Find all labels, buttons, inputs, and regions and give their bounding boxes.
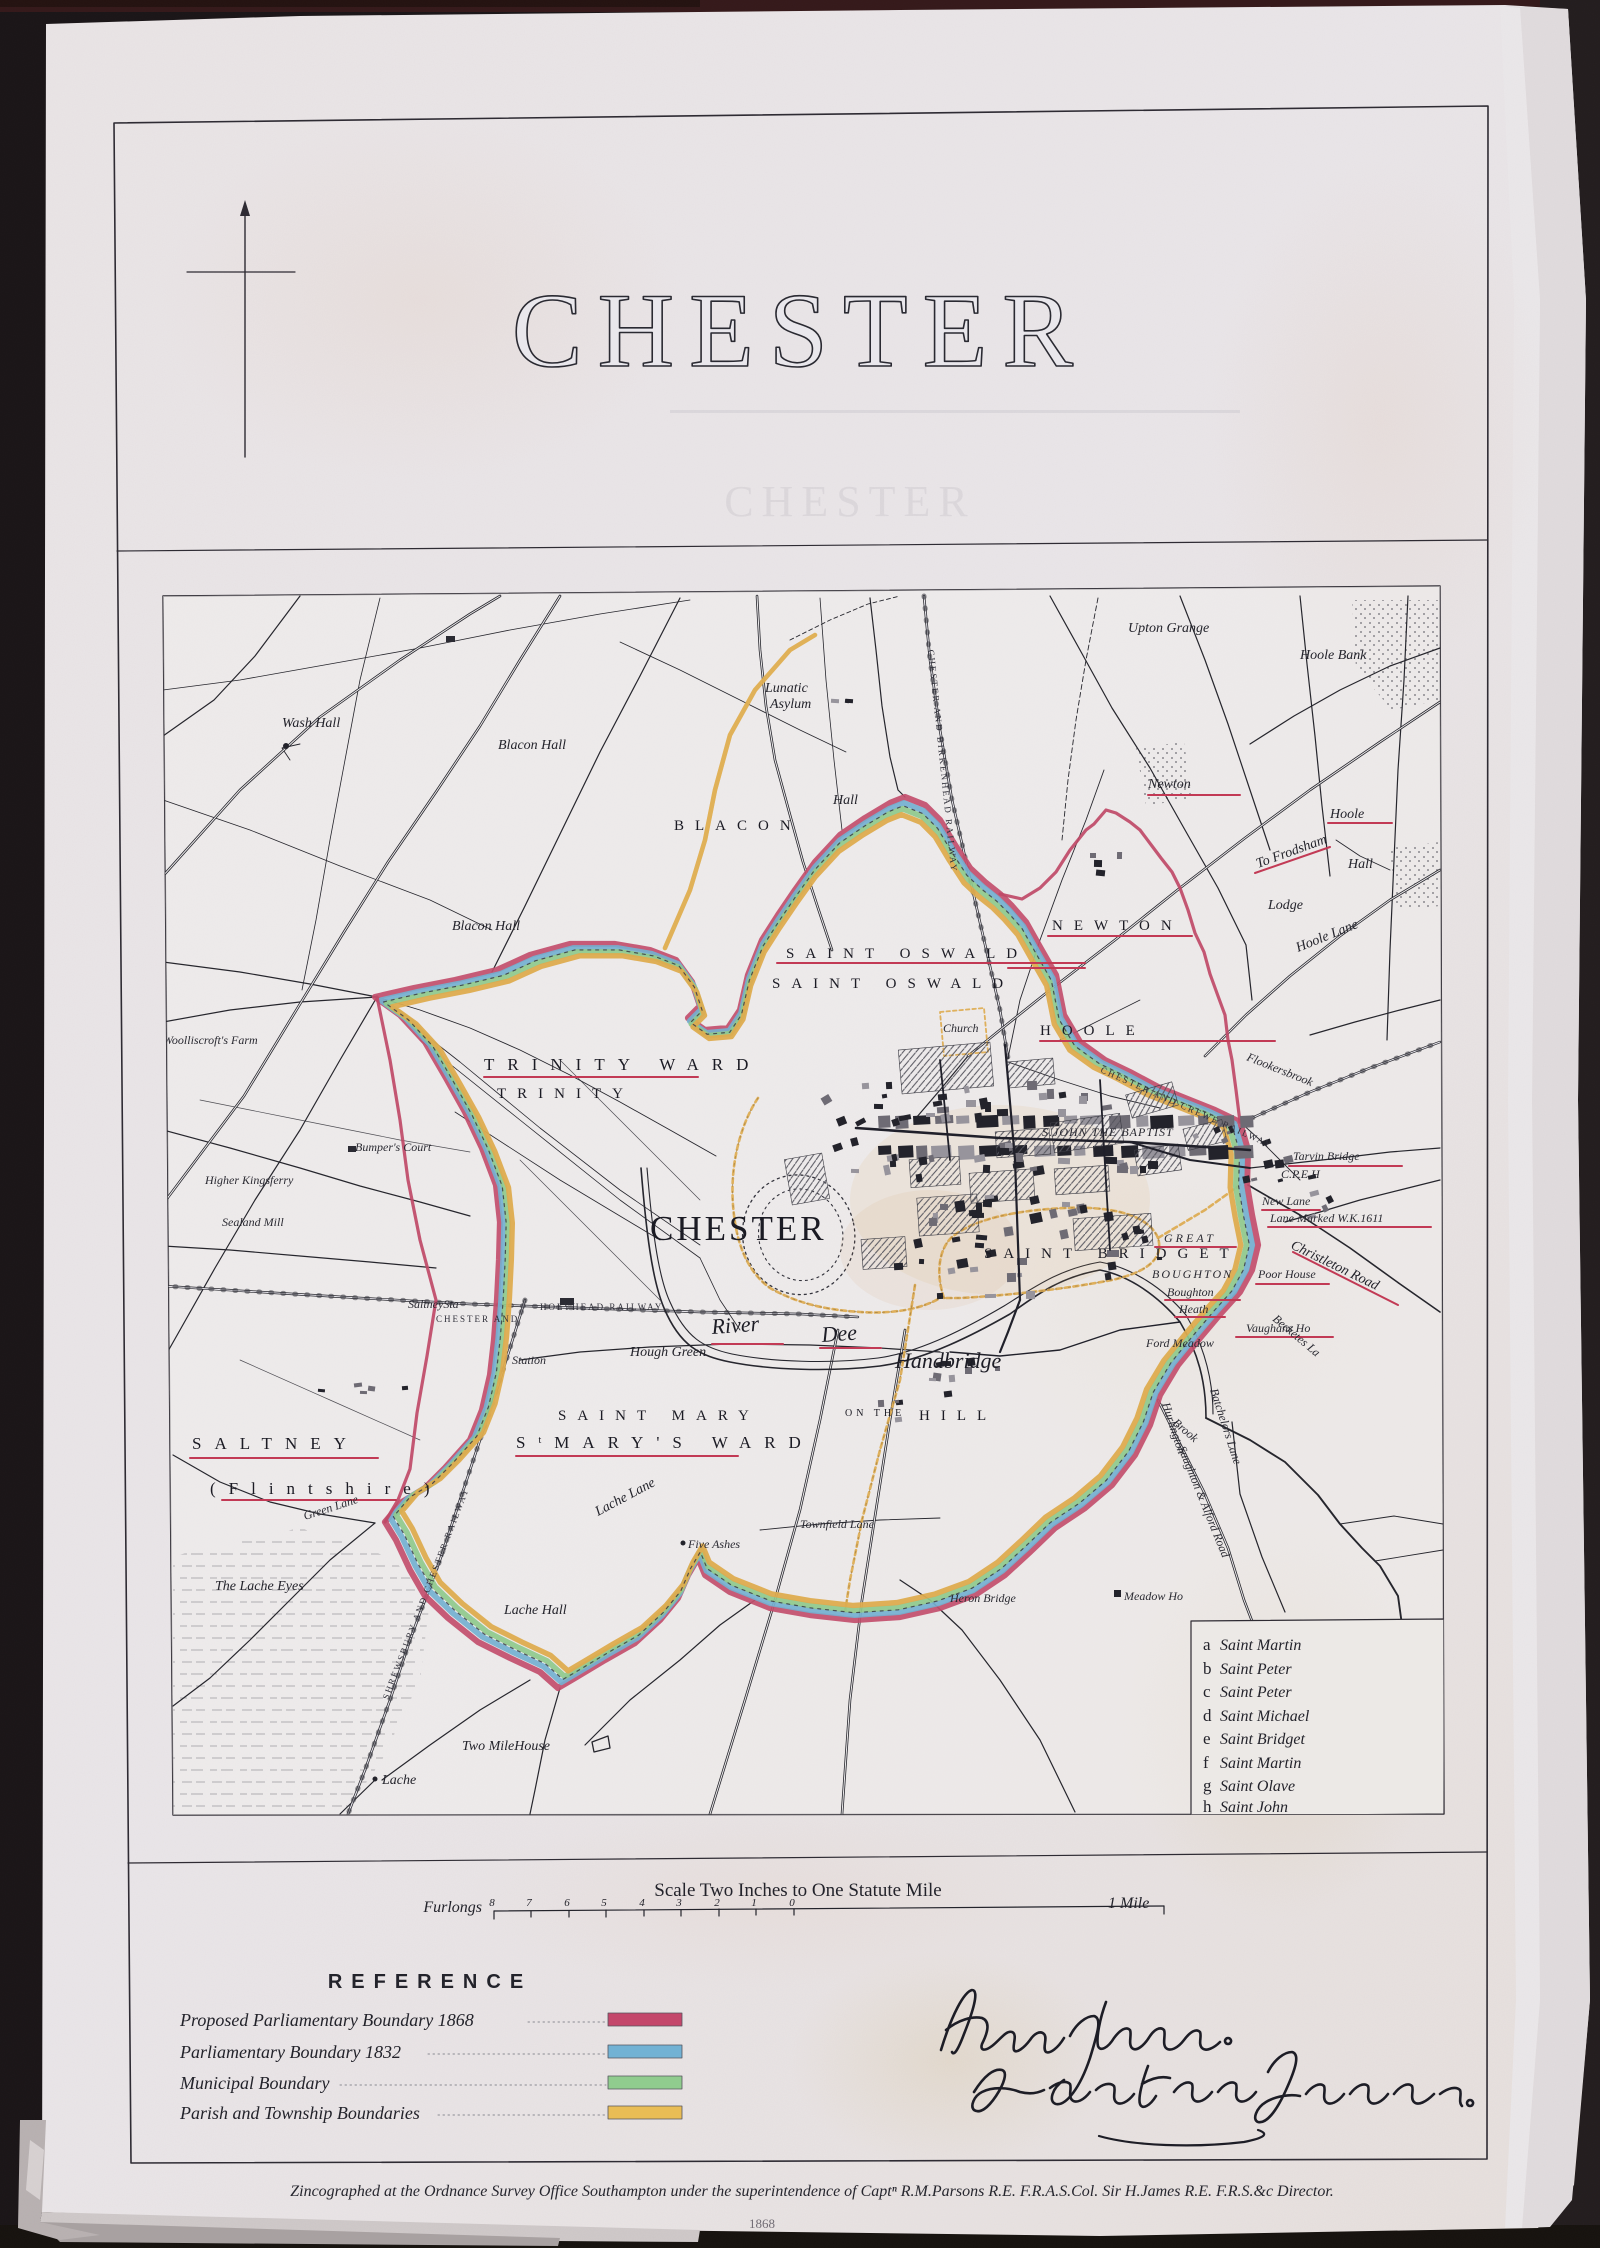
svg-text:h: h bbox=[1203, 1797, 1212, 1816]
svg-text:Saint Peter: Saint Peter bbox=[1220, 1684, 1292, 1701]
svg-text:Tarvin Bridge: Tarvin Bridge bbox=[1293, 1149, 1360, 1163]
svg-text:New Lane: New Lane bbox=[1261, 1194, 1311, 1208]
svg-text:HOOLE: HOOLE bbox=[1040, 1023, 1146, 1039]
svg-text:Station: Station bbox=[512, 1353, 546, 1367]
svg-text:Saint Olave: Saint Olave bbox=[1220, 1778, 1295, 1795]
svg-text:Hall: Hall bbox=[1347, 857, 1373, 872]
svg-text:Zincographed at the Ordnance S: Zincographed at the Ordnance Survey Offi… bbox=[290, 2183, 1334, 2200]
svg-text:Saint Martin: Saint Martin bbox=[1220, 1637, 1301, 1654]
svg-text:Saint Peter: Saint Peter bbox=[1220, 1661, 1292, 1678]
svg-text:Saint Michael: Saint Michael bbox=[1220, 1708, 1310, 1725]
svg-text:The Lache Eyes: The Lache Eyes bbox=[215, 1579, 304, 1594]
svg-text:SAINT OSWALD: SAINT OSWALD bbox=[786, 946, 1028, 962]
svg-text:CHESTER: CHESTER bbox=[512, 272, 1088, 389]
svg-text:0: 0 bbox=[789, 1897, 795, 1909]
svg-text:CHESTER: CHESTER bbox=[724, 477, 976, 526]
svg-text:Saint Bridget: Saint Bridget bbox=[1220, 1731, 1305, 1748]
svg-text:b: b bbox=[1203, 1659, 1212, 1678]
svg-text:SaltneySta: SaltneySta bbox=[408, 1297, 459, 1311]
svg-text:f: f bbox=[1203, 1753, 1209, 1772]
svg-text:Upton Grange: Upton Grange bbox=[1128, 621, 1209, 636]
svg-text:CHESTER AND: CHESTER AND bbox=[436, 1314, 519, 1324]
svg-text:StMARY'S WARD: StMARY'S WARD bbox=[516, 1433, 814, 1452]
svg-text:(Flintshire): (Flintshire) bbox=[210, 1479, 443, 1498]
svg-text:e: e bbox=[1203, 1729, 1211, 1748]
svg-text:Saint John: Saint John bbox=[1220, 1799, 1288, 1816]
svg-text:1868: 1868 bbox=[749, 2216, 775, 2231]
svg-text:NEWTON: NEWTON bbox=[1052, 918, 1183, 934]
svg-text:5: 5 bbox=[601, 1897, 607, 1909]
svg-text:ON THE: ON THE bbox=[845, 1408, 905, 1419]
svg-text:BOUGHTON: BOUGHTON bbox=[1152, 1267, 1233, 1281]
svg-text:Bumper's Court: Bumper's Court bbox=[355, 1140, 432, 1154]
svg-text:Heron Bridge: Heron Bridge bbox=[949, 1591, 1017, 1605]
svg-text:d: d bbox=[1203, 1706, 1212, 1725]
svg-text:Lache: Lache bbox=[381, 1773, 416, 1788]
svg-text:7: 7 bbox=[526, 1897, 532, 1909]
svg-text:REFERENCE: REFERENCE bbox=[328, 1971, 532, 1993]
svg-text:g: g bbox=[1203, 1776, 1212, 1795]
svg-text:TRINITY WARD: TRINITY WARD bbox=[484, 1055, 761, 1074]
svg-text:Hoole: Hoole bbox=[1329, 807, 1364, 822]
svg-text:Woolliscroft's Farm: Woolliscroft's Farm bbox=[163, 1033, 258, 1047]
svg-text:Lache Hall: Lache Hall bbox=[503, 1603, 567, 1618]
svg-text:1: 1 bbox=[751, 1897, 757, 1909]
svg-text:Poor House: Poor House bbox=[1257, 1267, 1316, 1281]
svg-text:Blacon Hall: Blacon Hall bbox=[498, 738, 566, 753]
svg-text:Hall: Hall bbox=[832, 793, 858, 808]
svg-text:Saint Martin: Saint Martin bbox=[1220, 1755, 1301, 1772]
svg-text:GREAT: GREAT bbox=[1164, 1231, 1216, 1245]
svg-text:Higher Kingsferry: Higher Kingsferry bbox=[204, 1173, 294, 1187]
svg-text:SAINT MARY: SAINT MARY bbox=[558, 1408, 760, 1424]
svg-text:6: 6 bbox=[564, 1897, 570, 1909]
svg-text:Hoole Bank: Hoole Bank bbox=[1299, 648, 1367, 663]
svg-text:Municipal Boundary: Municipal Boundary bbox=[179, 2073, 329, 2093]
svg-text:SAINT OSWALD: SAINT OSWALD bbox=[772, 976, 1014, 992]
svg-text:Boughton: Boughton bbox=[1167, 1285, 1214, 1299]
svg-text:Parliamentary Boundary 1832: Parliamentary Boundary 1832 bbox=[179, 2042, 401, 2062]
svg-text:Scale Two Inches to One S: Scale Two Inches to One Statute Mile bbox=[654, 1880, 941, 1901]
svg-text:Church: Church bbox=[943, 1021, 979, 1035]
svg-text:Wash Hall: Wash Hall bbox=[282, 716, 340, 731]
svg-text:SALTNEY: SALTNEY bbox=[192, 1434, 359, 1453]
svg-text:Hough Green: Hough Green bbox=[629, 1345, 706, 1360]
svg-text:3: 3 bbox=[675, 1897, 682, 1909]
svg-text:TRINITY: TRINITY bbox=[497, 1086, 634, 1102]
svg-text:Sealand Mill: Sealand Mill bbox=[222, 1215, 284, 1229]
svg-text:SAINT BRIDGET: SAINT BRIDGET bbox=[984, 1246, 1240, 1262]
svg-text:Lodge: Lodge bbox=[1267, 898, 1303, 913]
svg-text:BLACON: BLACON bbox=[674, 818, 802, 834]
svg-text:Proposed Parliamentary Bound: Proposed Parliamentary Boundary 1868 bbox=[179, 2010, 474, 2030]
svg-text:Meadow Ho: Meadow Ho bbox=[1123, 1589, 1183, 1603]
svg-text:Dee: Dee bbox=[820, 1320, 858, 1347]
svg-text:HILL: HILL bbox=[919, 1408, 997, 1424]
svg-text:Lane Marked W.K.1611: Lane Marked W.K.1611 bbox=[1269, 1211, 1383, 1225]
svg-text:1 Mile: 1 Mile bbox=[1108, 1895, 1149, 1912]
svg-text:Handbridge: Handbridge bbox=[894, 1348, 1002, 1373]
svg-text:Heath: Heath bbox=[1178, 1302, 1208, 1316]
svg-text:HOLYHEAD RAILWAY: HOLYHEAD RAILWAY bbox=[540, 1302, 663, 1312]
svg-text:c: c bbox=[1203, 1682, 1211, 1701]
svg-text:8: 8 bbox=[489, 1897, 495, 1909]
svg-text:C.P.E.H: C.P.E.H bbox=[1281, 1167, 1321, 1181]
svg-text:Five Ashes: Five Ashes bbox=[687, 1537, 740, 1551]
svg-text:Blacon Hall: Blacon Hall bbox=[452, 919, 520, 934]
svg-text:Furlongs: Furlongs bbox=[422, 1899, 482, 1916]
svg-text:Ford Meadow: Ford Meadow bbox=[1145, 1336, 1214, 1350]
svg-text:Parish and Township Boundar: Parish and Township Boundaries bbox=[179, 2103, 420, 2123]
svg-text:Asylum: Asylum bbox=[769, 697, 811, 712]
svg-text:Two MileHouse: Two MileHouse bbox=[462, 1739, 550, 1754]
svg-text:Lunatic: Lunatic bbox=[764, 681, 809, 696]
svg-text:4: 4 bbox=[639, 1897, 645, 1909]
svg-text:Newton: Newton bbox=[1147, 777, 1191, 792]
svg-text:S.JOHN THE BAPTIST: S.JOHN THE BAPTIST bbox=[1042, 1125, 1174, 1139]
svg-text:a: a bbox=[1203, 1635, 1211, 1654]
svg-text:2: 2 bbox=[714, 1897, 720, 1909]
svg-text:Townfield Lane: Townfield Lane bbox=[800, 1517, 875, 1531]
svg-text:River: River bbox=[710, 1311, 761, 1339]
svg-text:CHESTER: CHESTER bbox=[650, 1209, 827, 1248]
